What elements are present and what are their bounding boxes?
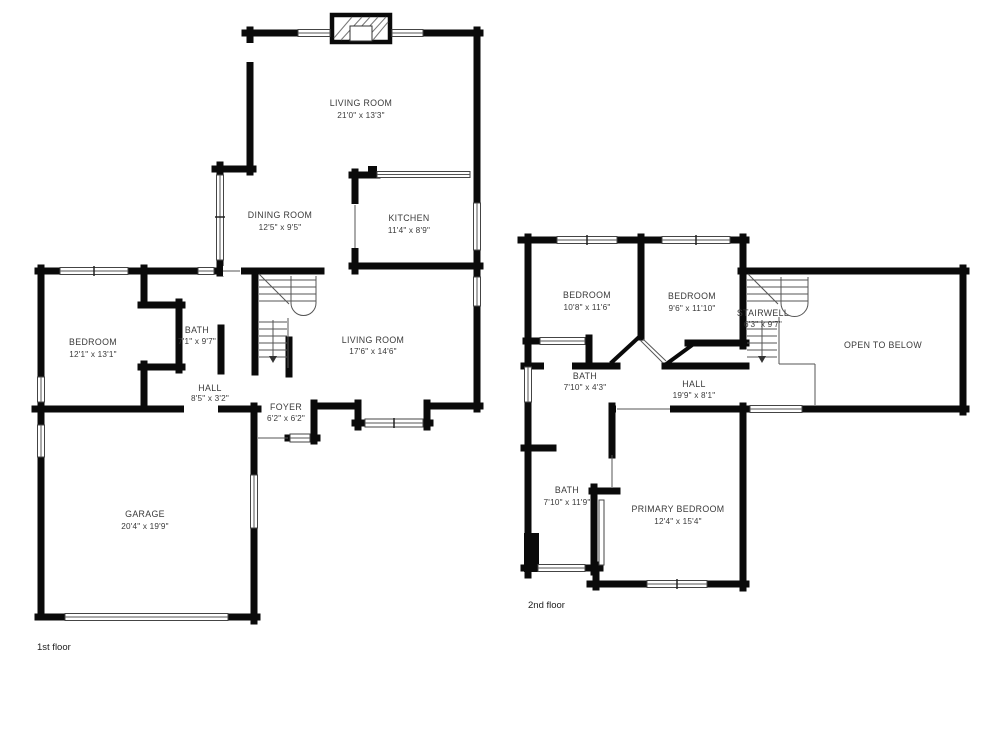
floor-plan-page: LIVING ROOM 21'0" x 13'3" DINING ROOM 12… xyxy=(0,0,1000,750)
room-label-hall-2f: HALL xyxy=(682,379,705,389)
room-dims-bedroom-right: 9'6" x 11'10" xyxy=(669,304,716,313)
room-label-bath-lower: BATH xyxy=(555,485,579,495)
room-dims-stairwell: 6'3" x 9'7" xyxy=(744,320,782,329)
room-label-living-room-upper: LIVING ROOM xyxy=(330,98,393,108)
kitchen-wall-stub xyxy=(368,166,377,178)
walls-first-floor xyxy=(35,30,480,621)
windows-first-floor xyxy=(38,30,481,621)
first-floor-label: 1st floor xyxy=(37,642,71,653)
room-label-garage: GARAGE xyxy=(125,509,165,519)
room-label-bedroom-1f: BEDROOM xyxy=(69,337,117,347)
room-label-stairwell: STAIRWELL xyxy=(737,308,789,318)
wall-block xyxy=(524,533,539,572)
room-dims-hall-2f: 19'9" x 8'1" xyxy=(673,391,716,400)
labels-first-floor: LIVING ROOM 21'0" x 13'3" DINING ROOM 12… xyxy=(37,98,430,653)
room-dims-bedroom-left: 10'8" x 11'6" xyxy=(564,303,611,312)
room-dims-kitchen: 11'4" x 8'9" xyxy=(388,226,430,235)
room-dims-foyer: 6'2" x 6'2" xyxy=(267,414,305,423)
room-dims-dining-room: 12'5" x 9'5" xyxy=(259,223,302,232)
room-dims-living-room-upper: 21'0" x 13'3" xyxy=(337,111,385,120)
room-dims-hall-1f: 8'5" x 3'2" xyxy=(191,394,229,403)
room-dims-bath-1f: 7'1" x 9'7" xyxy=(178,337,216,346)
room-dims-bath-upper: 7'10" x 4'3" xyxy=(564,383,607,392)
openings-second-floor xyxy=(544,361,670,487)
room-dims-bedroom-1f: 12'1" x 13'1" xyxy=(69,350,117,359)
room-dims-garage: 20'4" x 19'9" xyxy=(121,522,169,531)
hall-doors xyxy=(612,338,695,365)
room-label-bedroom-left: BEDROOM xyxy=(563,290,611,300)
stair-down-arrow xyxy=(758,356,766,363)
second-floor-plan: BEDROOM 10'8" x 11'6" BEDROOM 9'6" x 11'… xyxy=(521,235,966,611)
room-label-hall-1f: HALL xyxy=(198,383,221,393)
room-label-kitchen: KITCHEN xyxy=(388,213,429,223)
stair-down-arrow xyxy=(269,356,277,363)
floorplan-canvas: LIVING ROOM 21'0" x 13'3" DINING ROOM 12… xyxy=(0,0,1000,750)
room-dims-primary-bedroom: 12'4" x 15'4" xyxy=(654,517,702,526)
fireplace xyxy=(332,15,390,42)
room-label-foyer: FOYER xyxy=(270,402,302,412)
room-label-primary-bedroom: PRIMARY BEDROOM xyxy=(632,504,725,514)
room-label-dining-room: DINING ROOM xyxy=(248,210,312,220)
room-dims-living-room-lower: 17'6" x 14'6" xyxy=(349,347,397,356)
room-label-bath-upper: BATH xyxy=(573,371,597,381)
room-label-bedroom-right: BEDROOM xyxy=(668,291,716,301)
staircase-second-floor xyxy=(747,274,815,405)
room-dims-bath-lower: 7'10" x 11'9" xyxy=(544,498,591,507)
room-label-bath-1f: BATH xyxy=(185,325,209,335)
room-label-open-to-below: OPEN TO BELOW xyxy=(844,340,922,350)
room-label-living-room-lower: LIVING ROOM xyxy=(342,335,405,345)
second-floor-label: 2nd floor xyxy=(528,600,565,611)
staircase-first-floor xyxy=(259,274,316,368)
first-floor-plan: LIVING ROOM 21'0" x 13'3" DINING ROOM 12… xyxy=(35,15,481,653)
